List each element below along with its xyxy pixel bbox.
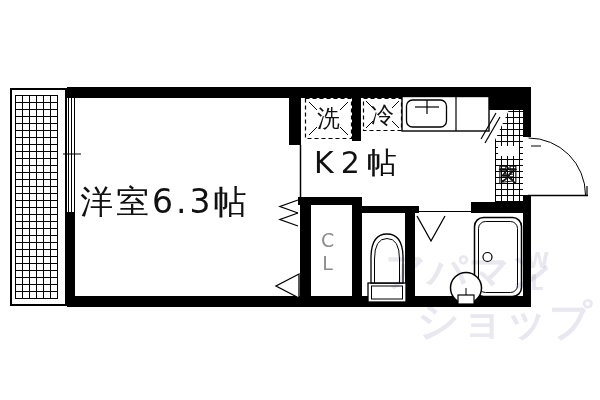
closet-letter-l: L [321,252,334,275]
washbasin-base [458,295,474,304]
entrance-door-arc-icon [529,138,586,195]
washer-label: 洗 [317,107,340,130]
wall-closet-left [300,197,311,296]
toilet-bowl-icon [371,234,403,283]
bathtub-drain-icon [483,253,492,262]
washer-corner-tick [340,102,348,110]
closet-label: C L [321,229,334,275]
washer-corner-tick [340,127,348,135]
room-label-western: 洋室6.3帖 [80,185,249,218]
wall-stub-washer-fridge [352,87,361,141]
door-triangle-icon [276,274,299,298]
wall-left-lower [67,212,75,302]
room-label-entrance: 玄関 [498,146,519,156]
wall-closet-toilet [352,197,362,296]
room-label-kitchen: K2帖 [314,148,404,178]
fridge-label: 冷 [371,104,394,127]
closet-letter-c: C [321,229,334,252]
wall-corner-topright [489,87,531,110]
floorplan-canvas: 洋室6.3帖 K2帖 玄関 洗 冷 C L アパマン W L ショップ [0,0,600,400]
wall-bath-top-right [471,202,531,213]
bath-door-swing-icon [417,216,445,241]
washer-corner-tick [309,102,317,110]
door-chevron-icon [280,213,298,226]
door-chevron-icon [280,200,298,213]
wall-room-kitchen [289,87,301,145]
washer-corner-tick [309,127,317,135]
